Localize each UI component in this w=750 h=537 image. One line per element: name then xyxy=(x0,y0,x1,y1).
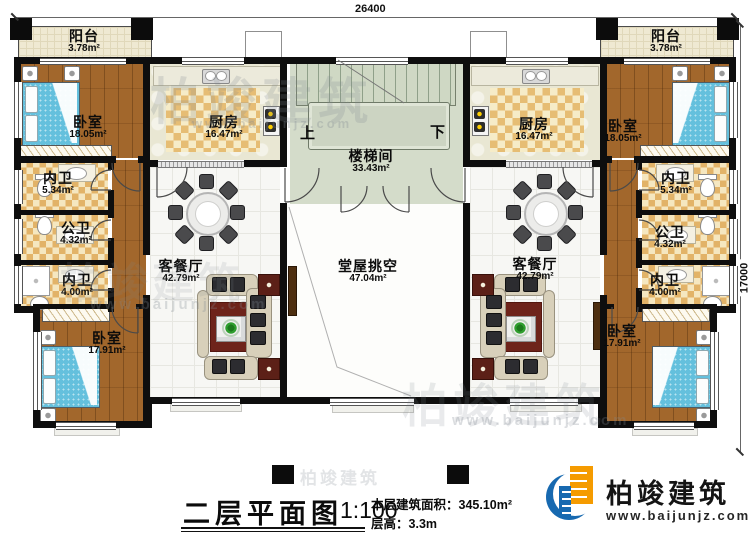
balcony-door-window xyxy=(624,58,710,65)
room-area: 42.79m² xyxy=(159,274,204,285)
dimension-line-top xyxy=(14,17,736,18)
room-name: 公卫 xyxy=(654,225,686,240)
wall-segment xyxy=(634,156,736,163)
stair-landing xyxy=(308,102,450,150)
wardrobe-icon xyxy=(642,308,710,322)
logo-building-blue xyxy=(559,486,571,516)
window xyxy=(14,170,23,204)
room-label-kitchen-left: 厨房 16.47m² xyxy=(205,115,242,141)
room-area: 16.47m² xyxy=(205,130,242,141)
room-area: 18.05m² xyxy=(69,130,106,141)
window xyxy=(729,170,738,204)
room-label-bath-public-left: 公卫 4.32m² xyxy=(60,221,92,247)
wall-segment xyxy=(636,156,642,170)
room-label-bedroom-top-left: 卧室 18.05m² xyxy=(69,115,106,141)
sofa-icon xyxy=(543,290,555,358)
room-area: 3.78m² xyxy=(650,44,682,55)
room-name: 阳台 xyxy=(68,29,100,44)
room-label-bedroom-bottom-left: 卧室 17.91m² xyxy=(88,331,125,357)
floor-area-value: 345.10m² xyxy=(459,498,513,512)
window xyxy=(729,266,738,304)
room-label-stairwell: 楼梯间 33.43m² xyxy=(349,149,394,175)
sink-basin xyxy=(536,71,547,81)
stair-treads xyxy=(296,62,456,106)
wall-segment xyxy=(136,304,146,309)
room-area: 5.34m² xyxy=(42,186,74,197)
room-label-bedroom-bottom-right: 卧室 17.91m² xyxy=(603,324,640,350)
nightstand-icon xyxy=(64,66,80,81)
window xyxy=(634,422,694,430)
window xyxy=(710,332,719,410)
burner-icon xyxy=(474,109,485,119)
floor-height-text: 层高：3.3m xyxy=(371,513,437,532)
side-table-icon xyxy=(258,274,280,296)
pillow-icon xyxy=(25,86,38,113)
chair-icon xyxy=(199,174,214,189)
wall-segment xyxy=(108,238,114,268)
logo-website-text: www.baijunjz.com xyxy=(606,508,750,523)
plan-title: 二层平面图 xyxy=(183,492,343,531)
room-name: 堂屋挑空 xyxy=(338,259,398,274)
window xyxy=(729,82,738,138)
chair-icon xyxy=(199,236,214,251)
room-area: 42.79m² xyxy=(513,272,558,283)
wall-segment xyxy=(143,295,150,428)
wall-segment xyxy=(33,304,113,309)
flue-bay-left xyxy=(245,31,282,59)
sofa-icon xyxy=(494,356,548,380)
floor-height-label: 层高： xyxy=(371,517,409,531)
column xyxy=(10,18,32,40)
room-name: 客餐厅 xyxy=(159,259,204,274)
floor-plan-page: 阳台 3.78m² 阳台 3.78m² 卧室 18.05m² 卧室 18.05m… xyxy=(0,0,750,537)
logo-icon xyxy=(546,464,602,528)
room-area: 4.00m² xyxy=(649,288,681,299)
dimension-line-right xyxy=(740,24,741,452)
room-label-kitchen-right: 厨房 16.47m² xyxy=(515,117,552,143)
sofa-cushion xyxy=(250,331,266,345)
wall-segment xyxy=(146,160,158,167)
room-label-hall-void: 堂屋挑空 47.04m² xyxy=(338,259,398,285)
chair-icon xyxy=(537,174,552,189)
room-name: 卧室 xyxy=(69,115,106,130)
room-name: 厨房 xyxy=(515,117,552,132)
plant-icon xyxy=(224,321,238,335)
dimension-label-top: 26400 xyxy=(352,3,389,15)
room-area: 16.47m² xyxy=(515,132,552,143)
dining-table-icon xyxy=(186,192,230,236)
column xyxy=(272,465,294,484)
sofa-cushion xyxy=(212,277,227,292)
room-name: 阳台 xyxy=(650,29,682,44)
nightstand-icon xyxy=(714,66,730,81)
chair-icon xyxy=(568,205,583,220)
dining-table-icon xyxy=(524,192,568,236)
bed-sheet xyxy=(653,347,683,405)
room-label-bath-inner-lower-right: 内卫 4.00m² xyxy=(649,273,681,299)
side-table-icon xyxy=(472,358,494,380)
pillow-icon xyxy=(714,115,727,142)
toilet-icon xyxy=(37,216,52,235)
room-name: 厨房 xyxy=(205,115,242,130)
window xyxy=(729,219,738,254)
pillow-icon xyxy=(43,378,56,404)
room-area: 47.04m² xyxy=(338,274,398,285)
wall-segment xyxy=(138,156,146,163)
room-area: 5.34m² xyxy=(660,186,692,197)
sofa-icon xyxy=(197,290,209,358)
wall-segment xyxy=(604,304,614,309)
shower-icon xyxy=(702,266,730,296)
window xyxy=(336,57,408,65)
window xyxy=(330,398,414,406)
sofa-cushion xyxy=(212,359,227,374)
column xyxy=(447,465,469,484)
toilet-icon xyxy=(700,178,715,197)
chair-icon xyxy=(230,205,245,220)
wall-segment xyxy=(14,156,116,163)
wall-segment xyxy=(280,203,287,397)
room-name: 客餐厅 xyxy=(513,257,558,272)
sink-basin xyxy=(525,71,536,81)
balcony-door-window xyxy=(40,58,126,65)
sofa-cushion xyxy=(230,277,245,292)
sink-basin xyxy=(205,71,216,81)
wall-segment xyxy=(604,156,612,163)
dimension-label-right: 17000 xyxy=(738,260,750,297)
plant-icon xyxy=(513,321,527,335)
logo-brand-text: 柏竣建筑 xyxy=(606,472,730,511)
side-table-icon xyxy=(258,358,280,380)
sofa-cushion xyxy=(250,295,266,309)
tv-cabinet-icon xyxy=(288,266,297,316)
pillow-icon xyxy=(714,86,727,113)
room-label-balcony-right: 阳台 3.78m² xyxy=(650,29,682,55)
burner-icon xyxy=(474,122,485,132)
room-name: 楼梯间 xyxy=(349,149,394,164)
room-label-bath-inner-upper-left: 内卫 5.34m² xyxy=(42,171,74,197)
chair-icon xyxy=(168,205,183,220)
wall-segment xyxy=(600,295,607,428)
room-hall-void xyxy=(287,204,463,397)
room-name: 卧室 xyxy=(88,331,125,346)
room-name: 内卫 xyxy=(649,273,681,288)
burner-icon xyxy=(265,122,276,132)
column xyxy=(596,18,618,40)
room-name: 内卫 xyxy=(660,171,692,186)
pillow-icon xyxy=(696,378,709,404)
sofa-cushion xyxy=(486,295,502,309)
floor-area-text: 本层建筑面积：345.10m² xyxy=(371,494,512,513)
nightstand-icon xyxy=(22,66,38,81)
room-area: 33.43m² xyxy=(349,164,394,175)
room-label-bath-public-right: 公卫 4.32m² xyxy=(654,225,686,251)
window xyxy=(14,219,23,254)
wall-segment xyxy=(637,304,717,309)
pillow-icon xyxy=(25,115,38,142)
watermark-brand: 柏竣建筑 xyxy=(300,464,380,489)
window xyxy=(510,398,578,406)
nightstand-icon xyxy=(672,66,688,81)
window xyxy=(182,57,244,65)
toilet-icon xyxy=(700,216,715,235)
logo-building-orange xyxy=(570,466,593,504)
hallway-right xyxy=(604,160,638,310)
wall-segment xyxy=(108,190,114,218)
room-area: 4.32m² xyxy=(654,240,686,251)
chair-icon xyxy=(537,236,552,251)
room-area: 4.32m² xyxy=(60,236,92,247)
pillow-icon xyxy=(696,350,709,376)
room-area: 3.78m² xyxy=(68,44,100,55)
wall-segment xyxy=(14,260,112,265)
window xyxy=(506,57,568,65)
room-area: 17.91m² xyxy=(88,346,125,357)
window xyxy=(172,398,240,406)
room-name: 内卫 xyxy=(61,273,93,288)
sofa-cushion xyxy=(505,359,520,374)
side-table-icon xyxy=(472,274,494,296)
room-label-living-dining-left: 客餐厅 42.79m² xyxy=(159,259,204,285)
bed-sheet xyxy=(673,83,702,143)
wall-segment xyxy=(463,203,470,397)
wall-segment xyxy=(638,260,736,265)
chair-icon xyxy=(506,205,521,220)
wall-segment xyxy=(280,57,287,167)
window xyxy=(14,266,23,304)
wall-segment xyxy=(638,210,736,215)
title-underline xyxy=(181,527,365,529)
room-name: 内卫 xyxy=(42,171,74,186)
wardrobe-icon xyxy=(42,308,110,322)
nightstand-icon xyxy=(40,330,56,345)
wall-segment xyxy=(108,156,114,170)
shower-icon xyxy=(22,266,50,296)
room-label-bath-inner-upper-right: 内卫 5.34m² xyxy=(660,171,692,197)
room-name: 公卫 xyxy=(60,221,92,236)
wall-segment xyxy=(14,210,112,215)
wall-segment xyxy=(463,160,506,167)
burner-icon xyxy=(265,109,276,119)
room-name: 卧室 xyxy=(603,324,640,339)
wall-segment xyxy=(636,190,642,218)
wall-segment xyxy=(463,57,470,167)
room-area: 17.91m² xyxy=(603,339,640,350)
sofa-cushion xyxy=(250,313,266,327)
hallway-left xyxy=(112,160,146,310)
sink-basin xyxy=(216,71,227,81)
floor-height-value: 3.3m xyxy=(409,517,438,531)
title-underline-thin xyxy=(181,531,365,532)
flue-bay-right xyxy=(470,31,507,59)
sofa-cushion xyxy=(486,313,502,327)
window xyxy=(56,422,116,430)
column xyxy=(131,18,153,40)
room-label-bedroom-top-right: 卧室 18.05m² xyxy=(604,119,641,145)
sofa-cushion xyxy=(486,331,502,345)
room-area: 18.05m² xyxy=(604,134,641,145)
window xyxy=(33,332,42,410)
pillow-icon xyxy=(43,350,56,376)
room-area: 4.00m² xyxy=(61,288,93,299)
kitchen-pass-right xyxy=(506,161,592,168)
room-label-bath-inner-lower-left: 内卫 4.00m² xyxy=(61,273,93,299)
sofa-cushion xyxy=(523,359,538,374)
room-name: 卧室 xyxy=(604,119,641,134)
wall-segment xyxy=(244,160,287,167)
room-label-living-dining-right: 客餐厅 42.79m² xyxy=(513,257,558,283)
floor-area-label: 本层建筑面积： xyxy=(371,498,459,512)
room-label-balcony-left: 阳台 3.78m² xyxy=(68,29,100,55)
sofa-cushion xyxy=(230,359,245,374)
kitchen-pass-left xyxy=(158,161,244,168)
stair-up-label: 上 xyxy=(300,122,315,143)
wall-segment xyxy=(636,238,642,268)
stair-down-label: 下 xyxy=(430,121,445,142)
window xyxy=(14,82,23,138)
